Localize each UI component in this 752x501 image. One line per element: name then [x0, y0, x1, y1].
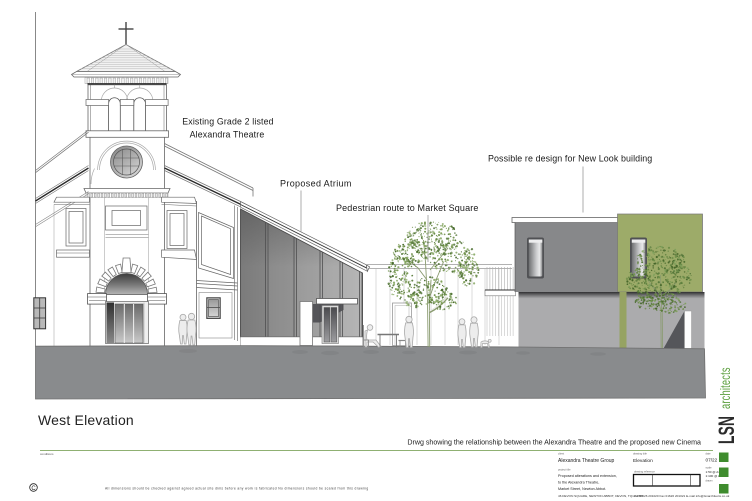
svg-text:Proposed alterations and exten: Proposed alterations and extension, [558, 474, 617, 478]
svg-text:date: date [706, 452, 712, 456]
svg-text:Proposed Atrium: Proposed Atrium [280, 179, 352, 189]
svg-text:architects: architects [720, 367, 734, 409]
svg-text:project title: project title [558, 468, 571, 472]
svg-text:C: C [31, 486, 36, 492]
svg-text:client: client [558, 452, 564, 456]
svg-text:drawing reference: drawing reference [634, 470, 655, 474]
svg-text:to the Alexandra Theatre,: to the Alexandra Theatre, [558, 481, 599, 485]
svg-text:Drwg showing the relationship: Drwg showing the relationship between th… [407, 439, 701, 447]
svg-text:Market Street, Newton Abbot.: Market Street, Newton Abbot. [558, 487, 606, 491]
svg-text:46 DEVON SQUARE, NEWTON ABBOT: 46 DEVON SQUARE, NEWTON ABBOT, DEVON, TQ… [558, 494, 643, 498]
svg-text:Existing Grade 2 listed: Existing Grade 2 listed [182, 117, 273, 127]
svg-text:Pedestrian route to Market Squ: Pedestrian route to Market Square [336, 203, 479, 213]
svg-text:drawn: drawn [706, 479, 714, 483]
svg-text:conditions: conditions [40, 452, 54, 456]
svg-text:scale: scale [706, 466, 713, 470]
svg-text:Elevation: Elevation [633, 458, 653, 464]
svg-text:Alexandra Theatre Group: Alexandra Theatre Group [558, 458, 615, 464]
svg-text:Tel 01626 201020 Fax 01626: Tel 01626 201020 Fax 01626 201021 E-mail… [634, 494, 730, 498]
svg-text:Alexandra Theatre: Alexandra Theatre [190, 130, 265, 140]
svg-text:All dimensions should be check: All dimensions should be checked against… [105, 487, 369, 491]
svg-text:West Elevation: West Elevation [38, 412, 134, 428]
svg-text:LSN: LSN [714, 416, 739, 444]
svg-text:07/22: 07/22 [706, 458, 718, 463]
svg-text:Possible re design for New Loo: Possible re design for New Look building [488, 154, 652, 164]
svg-text:drawing title: drawing title [633, 452, 647, 456]
